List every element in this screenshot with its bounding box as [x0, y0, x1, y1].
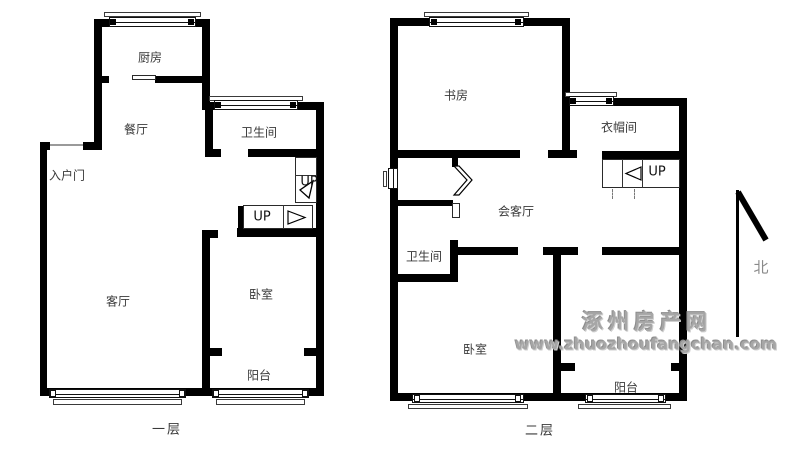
window-mid-line — [430, 22, 523, 23]
window-mid-line — [393, 169, 394, 188]
wall — [452, 158, 458, 167]
wall — [248, 149, 324, 157]
wall — [95, 76, 109, 83]
wall — [736, 190, 739, 337]
wall — [202, 348, 222, 356]
door-leaf-bathroom-second — [452, 203, 460, 218]
window-sill — [408, 404, 528, 409]
room-label-cloakroom: 衣帽间 — [601, 119, 637, 136]
stair-dashed-line — [612, 189, 613, 199]
window — [412, 394, 524, 403]
wall — [304, 348, 324, 356]
room-label-kitchen: 厨房 — [138, 49, 162, 66]
window-end-block — [213, 390, 219, 397]
room-label-bathroom-second: 卫生间 — [406, 248, 442, 265]
room-label-study: 书房 — [444, 87, 468, 104]
window-sill — [216, 399, 305, 405]
wall — [390, 188, 398, 398]
thin-line — [642, 159, 643, 188]
window — [214, 100, 298, 110]
window-end-block — [515, 19, 521, 25]
room-label-balcony-second: 阳台 — [614, 379, 638, 396]
window-end-block — [290, 102, 296, 108]
window-end-block — [658, 395, 664, 402]
wall — [553, 251, 561, 398]
room-label-reception: 会客厅 — [498, 203, 534, 220]
window-end-block — [110, 19, 116, 25]
room-label-living: 客厅 — [106, 293, 130, 310]
window-end-block — [414, 395, 420, 402]
floor-caption-first: 一层 — [152, 419, 182, 438]
window — [212, 389, 309, 398]
wall — [237, 228, 324, 237]
door-swing-icon — [454, 166, 472, 195]
wall — [205, 149, 221, 157]
window-end-block — [431, 19, 437, 25]
window-end-block — [570, 98, 576, 104]
window-end-block — [188, 19, 194, 25]
north-arrow-diagonal — [738, 192, 766, 240]
room-label-bedroom-second: 卧室 — [463, 341, 487, 358]
window-end-block — [179, 390, 185, 397]
watermark-site-url: www.zhuozhoufangchan.com — [515, 335, 777, 354]
north-label: 北 — [753, 257, 768, 278]
wall — [155, 76, 210, 83]
room-label-balcony-first: 阳台 — [247, 367, 271, 384]
room-label-dining: 餐厅 — [124, 121, 148, 138]
window-mid-line — [215, 105, 297, 106]
wall — [602, 151, 687, 159]
window-sill — [53, 399, 182, 405]
wall — [390, 274, 458, 282]
window-mid-line — [213, 394, 308, 395]
stairs-up-label-second: UP — [648, 165, 665, 180]
entry-door-line — [50, 144, 83, 146]
window — [49, 389, 186, 398]
wall — [562, 18, 570, 158]
wall — [390, 200, 453, 206]
window-end-block — [587, 395, 593, 402]
window-end-block — [215, 102, 221, 108]
wall — [450, 240, 458, 278]
window-sill — [383, 171, 387, 187]
wall — [40, 142, 47, 396]
floor-plan-canvas: 厨房 餐厅 卫生间 入户门 客厅 卧室 阳台 一层 UP UP 书房 衣帽间 会… — [0, 0, 800, 450]
stairs-up-label-first-lower: UP — [253, 210, 270, 225]
window-mid-line — [50, 394, 185, 395]
window — [429, 17, 524, 27]
room-label-bedroom-first: 卧室 — [249, 286, 273, 303]
wall — [390, 18, 398, 170]
stairs-box-second — [602, 159, 680, 188]
window — [388, 168, 398, 189]
stair-dashed-line — [634, 189, 635, 199]
wall — [455, 247, 518, 255]
wall — [392, 150, 520, 158]
sliding-door-kitchen — [132, 75, 156, 80]
wall — [83, 142, 102, 150]
watermark-site-name: 涿州房产网 — [582, 306, 712, 336]
window-mid-line — [586, 399, 665, 400]
stairs-up-label-first-upper: UP — [300, 175, 317, 190]
thin-line — [283, 205, 284, 229]
wall — [202, 230, 210, 396]
window-end-block — [606, 98, 612, 104]
wall — [561, 363, 575, 371]
window-end-block — [302, 390, 308, 397]
room-label-bathroom-first: 卫生间 — [241, 124, 277, 141]
wall — [94, 19, 102, 148]
thin-line — [622, 159, 623, 188]
room-label-entry: 入户门 — [49, 167, 85, 184]
wall — [671, 363, 687, 371]
wall — [202, 230, 218, 238]
window — [109, 17, 196, 27]
floor-caption-second: 二层 — [525, 420, 555, 439]
wall — [602, 247, 687, 255]
window-mid-line — [413, 399, 523, 400]
window-end-block — [50, 390, 56, 397]
window-sill — [578, 404, 671, 409]
window-mid-line — [110, 22, 195, 23]
window-end-block — [515, 395, 521, 402]
